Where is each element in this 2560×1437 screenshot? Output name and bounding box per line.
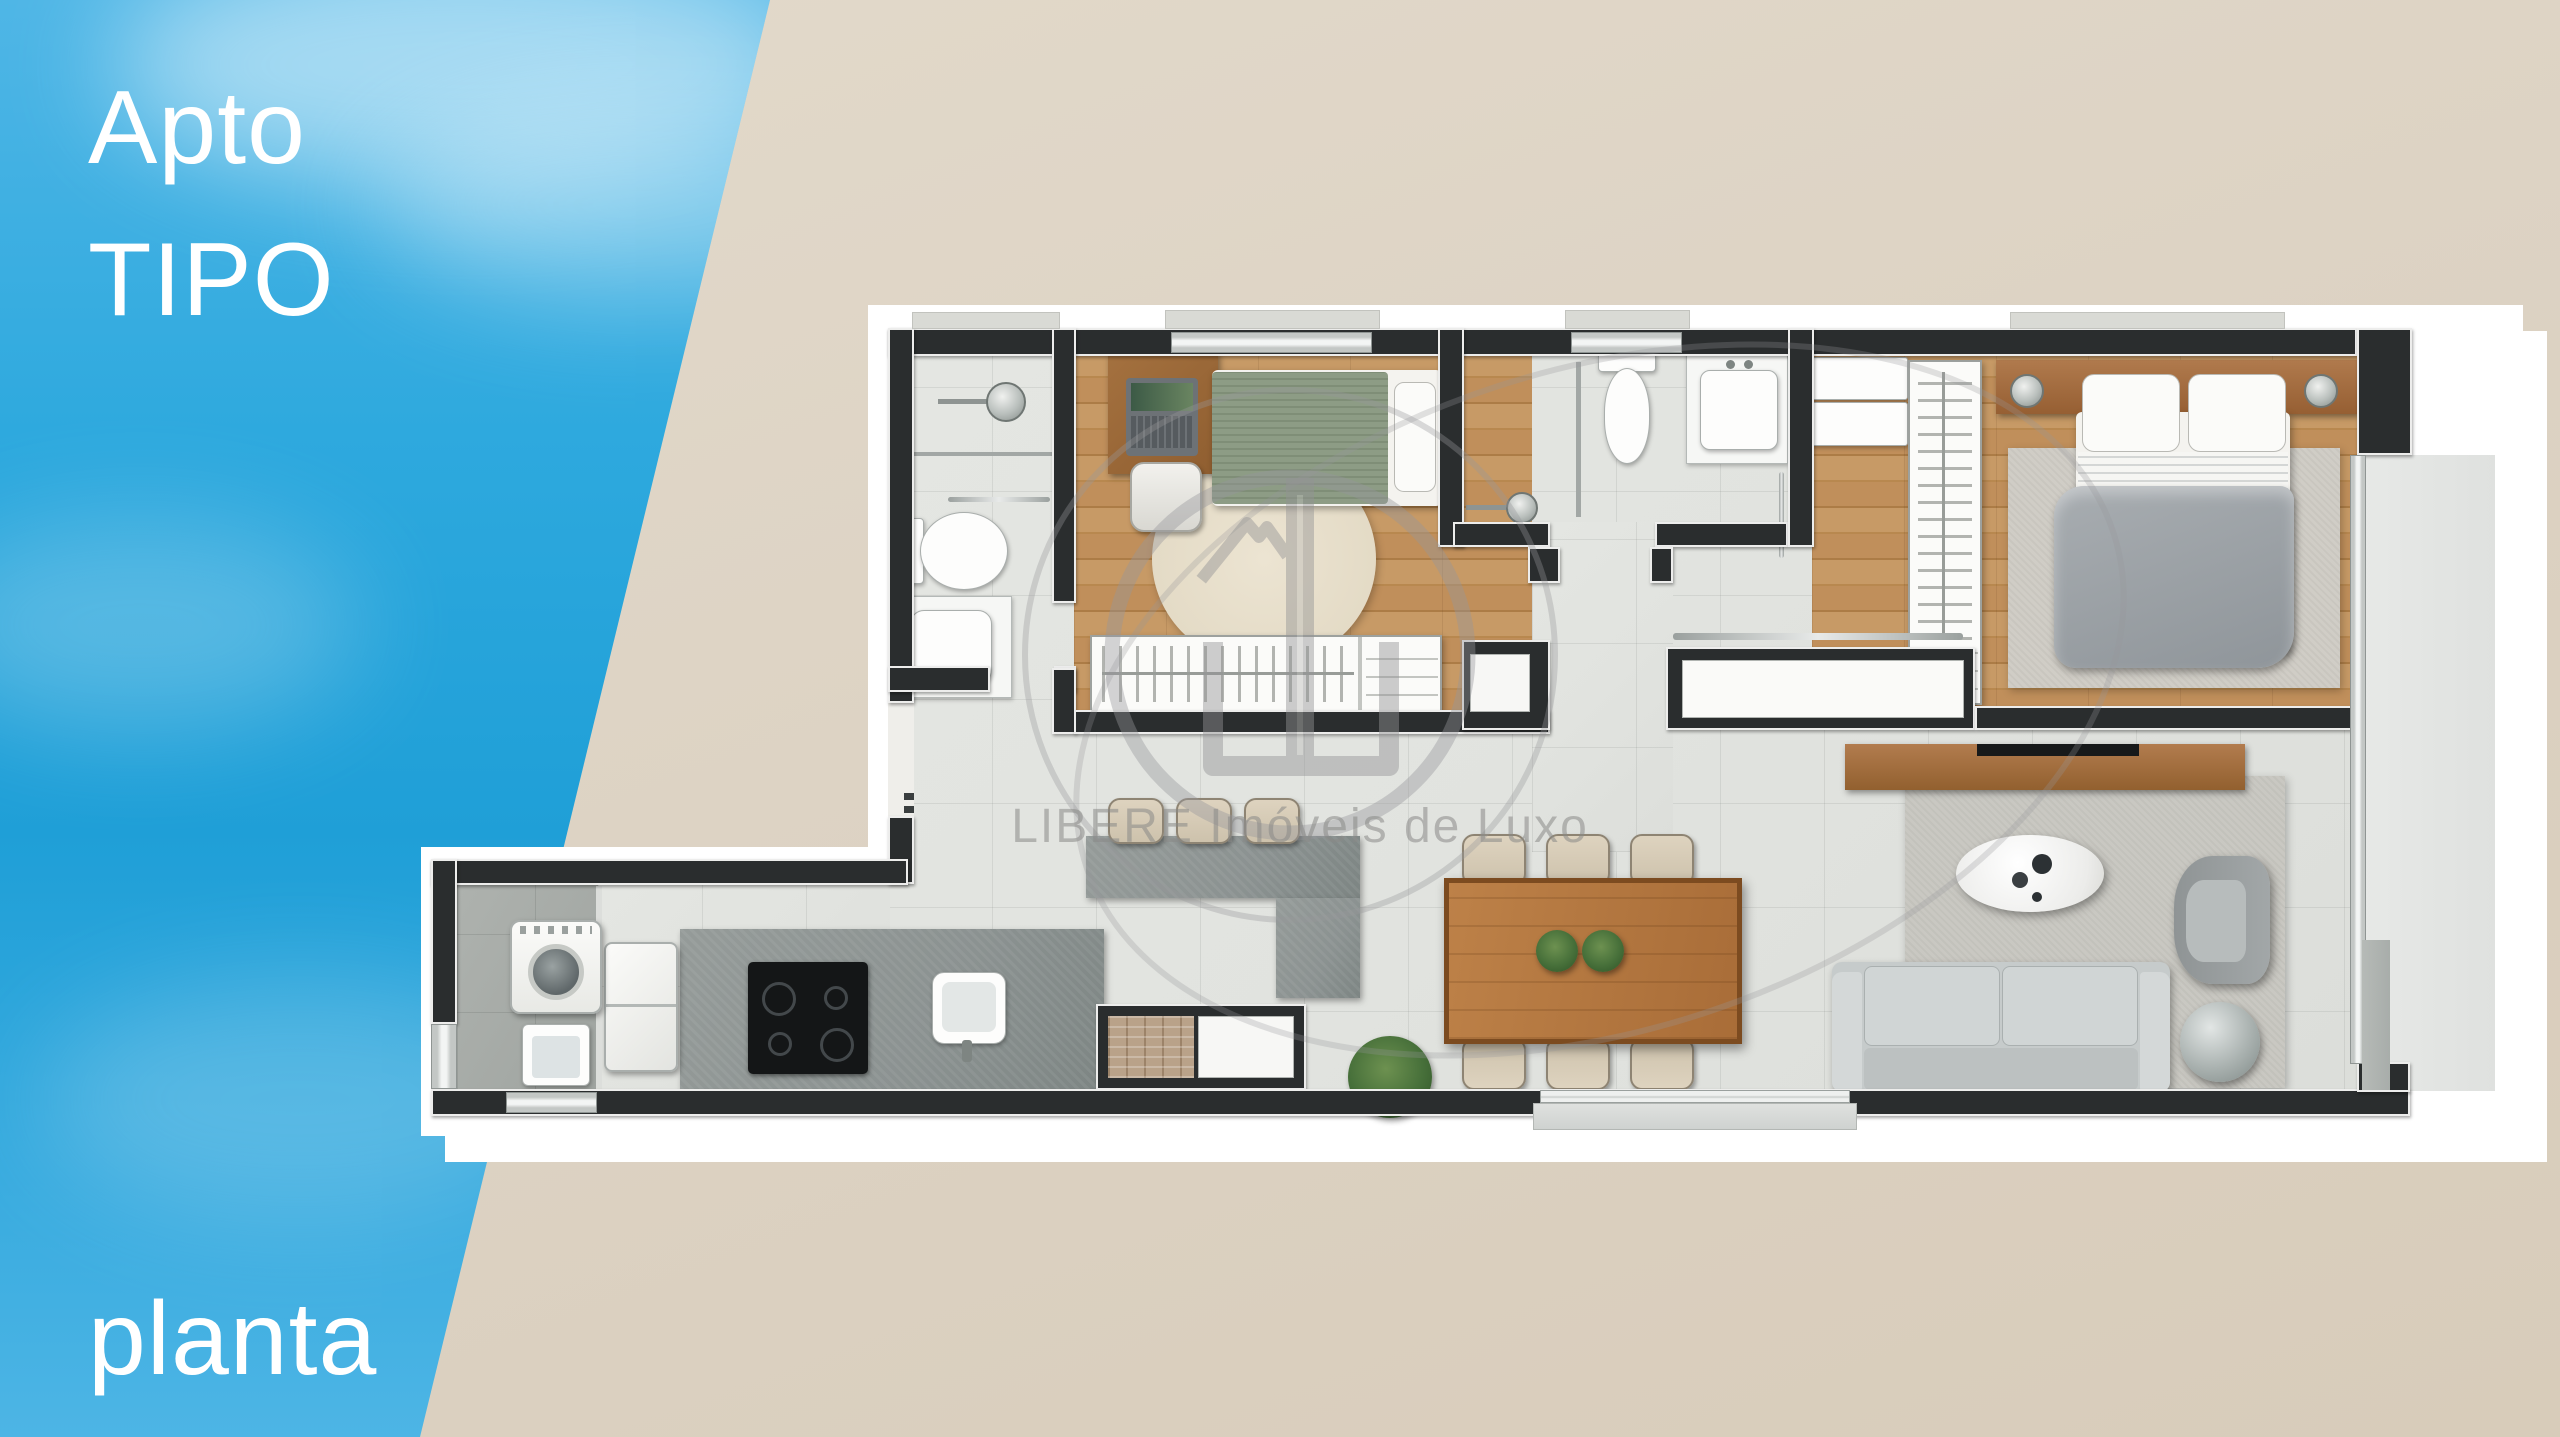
bedside-lamp: [2010, 374, 2044, 408]
window-bedroom1: [1171, 332, 1372, 353]
closet-shelf: [1366, 676, 1438, 678]
shower-head-bath1: [986, 382, 1026, 422]
laptop-screen: [1131, 383, 1193, 411]
bed-blanket-green: [1212, 372, 1388, 504]
window-service-left: [431, 1024, 457, 1089]
floor-plan: [0, 0, 2560, 1437]
table-decor: [2032, 892, 2042, 902]
burner: [820, 1028, 854, 1062]
pillow-right: [2188, 374, 2286, 452]
wall-bath2-bottom: [1655, 522, 1788, 547]
burner: [824, 986, 848, 1010]
pillow-left: [2082, 374, 2180, 452]
vanity-panel: [1470, 654, 1530, 712]
dining-chair: [1630, 1038, 1694, 1090]
pantry-door: [1198, 1016, 1294, 1078]
burner: [768, 1032, 792, 1056]
washer-drum: [528, 944, 584, 1000]
window-sill: [1165, 310, 1380, 329]
wall-corner-topright: [2357, 328, 2412, 455]
wall-bedroom1-left: [1052, 328, 1076, 603]
dining-chair: [1462, 1038, 1526, 1090]
closet-divider: [1358, 637, 1362, 710]
island-counter-leg: [1276, 898, 1360, 998]
window-sill: [912, 312, 1060, 329]
coffee-table-oval: [1956, 835, 2104, 912]
burner: [762, 982, 796, 1016]
shower-glass-bath2: [1576, 362, 1581, 517]
armchair-seat: [2186, 880, 2246, 962]
table-decor: [2032, 854, 2052, 874]
bar-stool: [1176, 798, 1232, 844]
wall-master-living: [1975, 706, 2357, 730]
laptop-keyboard: [1131, 416, 1193, 448]
bar-stool: [1244, 798, 1300, 844]
wall-pillar: [1528, 547, 1560, 583]
sofa-armrest: [2140, 972, 2170, 1092]
closet-rod: [1102, 672, 1354, 675]
closet-master-rod: [1942, 372, 1945, 640]
window-sill: [2010, 312, 2285, 329]
desk-chair: [1130, 462, 1202, 532]
side-table-round: [2180, 1002, 2260, 1082]
closet-shelf: [1366, 694, 1438, 696]
kitchen-sink-basin: [942, 982, 996, 1032]
shower-glass-bath1: [914, 452, 1052, 456]
poster: Apto TIPO planta: [0, 0, 2560, 1437]
door-stop: [904, 793, 914, 800]
window-sill: [1565, 310, 1690, 329]
master-sliding-door-panel: [1682, 660, 1964, 718]
bed-duvet: [2054, 486, 2294, 668]
wall-service-top: [431, 859, 908, 885]
fridge: [604, 942, 678, 1072]
shower-arm-bath1: [938, 399, 992, 404]
sink-basin-bath2: [1700, 370, 1778, 450]
table-plant: [1582, 930, 1624, 972]
fridge-door-line: [606, 1004, 676, 1007]
balcony-column: [2362, 940, 2390, 1090]
laundry-sink-basin: [532, 1036, 580, 1078]
window-laundry: [506, 1092, 597, 1113]
towel-bar-bath1: [948, 497, 1050, 502]
closet-shelf: [1366, 658, 1438, 660]
closet-master-hangers: [1918, 372, 1972, 640]
door-stop: [904, 806, 914, 813]
wall-left-upper: [888, 328, 914, 703]
wall-bedroom1-left-low: [1052, 668, 1076, 734]
sliding-door-rail: [1673, 633, 1963, 640]
wall-bottom: [431, 1089, 2410, 1116]
wall-service-left: [431, 859, 457, 1024]
tv: [1977, 744, 2139, 756]
kitchen-counter: [680, 929, 1104, 1089]
dining-chair: [1546, 1038, 1610, 1090]
toilet-bowl-bath2: [1604, 368, 1650, 464]
bedside-lamp: [2304, 374, 2338, 408]
wall-bedroom1-right: [1438, 328, 1464, 547]
wardrobe-box: [1804, 357, 1908, 400]
wall-bath2-right: [1788, 328, 1814, 547]
wardrobe-box: [1804, 402, 1908, 446]
sliding-door-sill: [1533, 1103, 1857, 1130]
faucet-bath2-handle: [1744, 360, 1753, 369]
island-counter: [1086, 836, 1360, 898]
pantry-brick: [1108, 1016, 1194, 1078]
sofa-cushion: [2002, 966, 2138, 1046]
wall-bath1-bottom: [888, 666, 990, 692]
bed-pillow: [1394, 382, 1436, 492]
wall-bath2-bottom: [1453, 522, 1550, 547]
toilet-bowl-bath1: [920, 512, 1008, 590]
faucet-bath2: [1726, 360, 1735, 369]
cooktop: [748, 962, 868, 1074]
shower-head-bath2: [1506, 492, 1538, 524]
table-plant: [1536, 930, 1578, 972]
kitchen-faucet: [962, 1040, 972, 1062]
bar-stool: [1108, 798, 1164, 844]
wall-pillar: [1650, 547, 1673, 583]
washer-controls: [520, 926, 592, 934]
window-bath2: [1571, 332, 1682, 353]
sofa-backrest: [1864, 1048, 2138, 1090]
sofa-armrest: [1832, 972, 1862, 1092]
table-decor: [2012, 872, 2028, 888]
sofa-cushion: [1864, 966, 2000, 1046]
sliding-door-dining: [1540, 1090, 1850, 1103]
